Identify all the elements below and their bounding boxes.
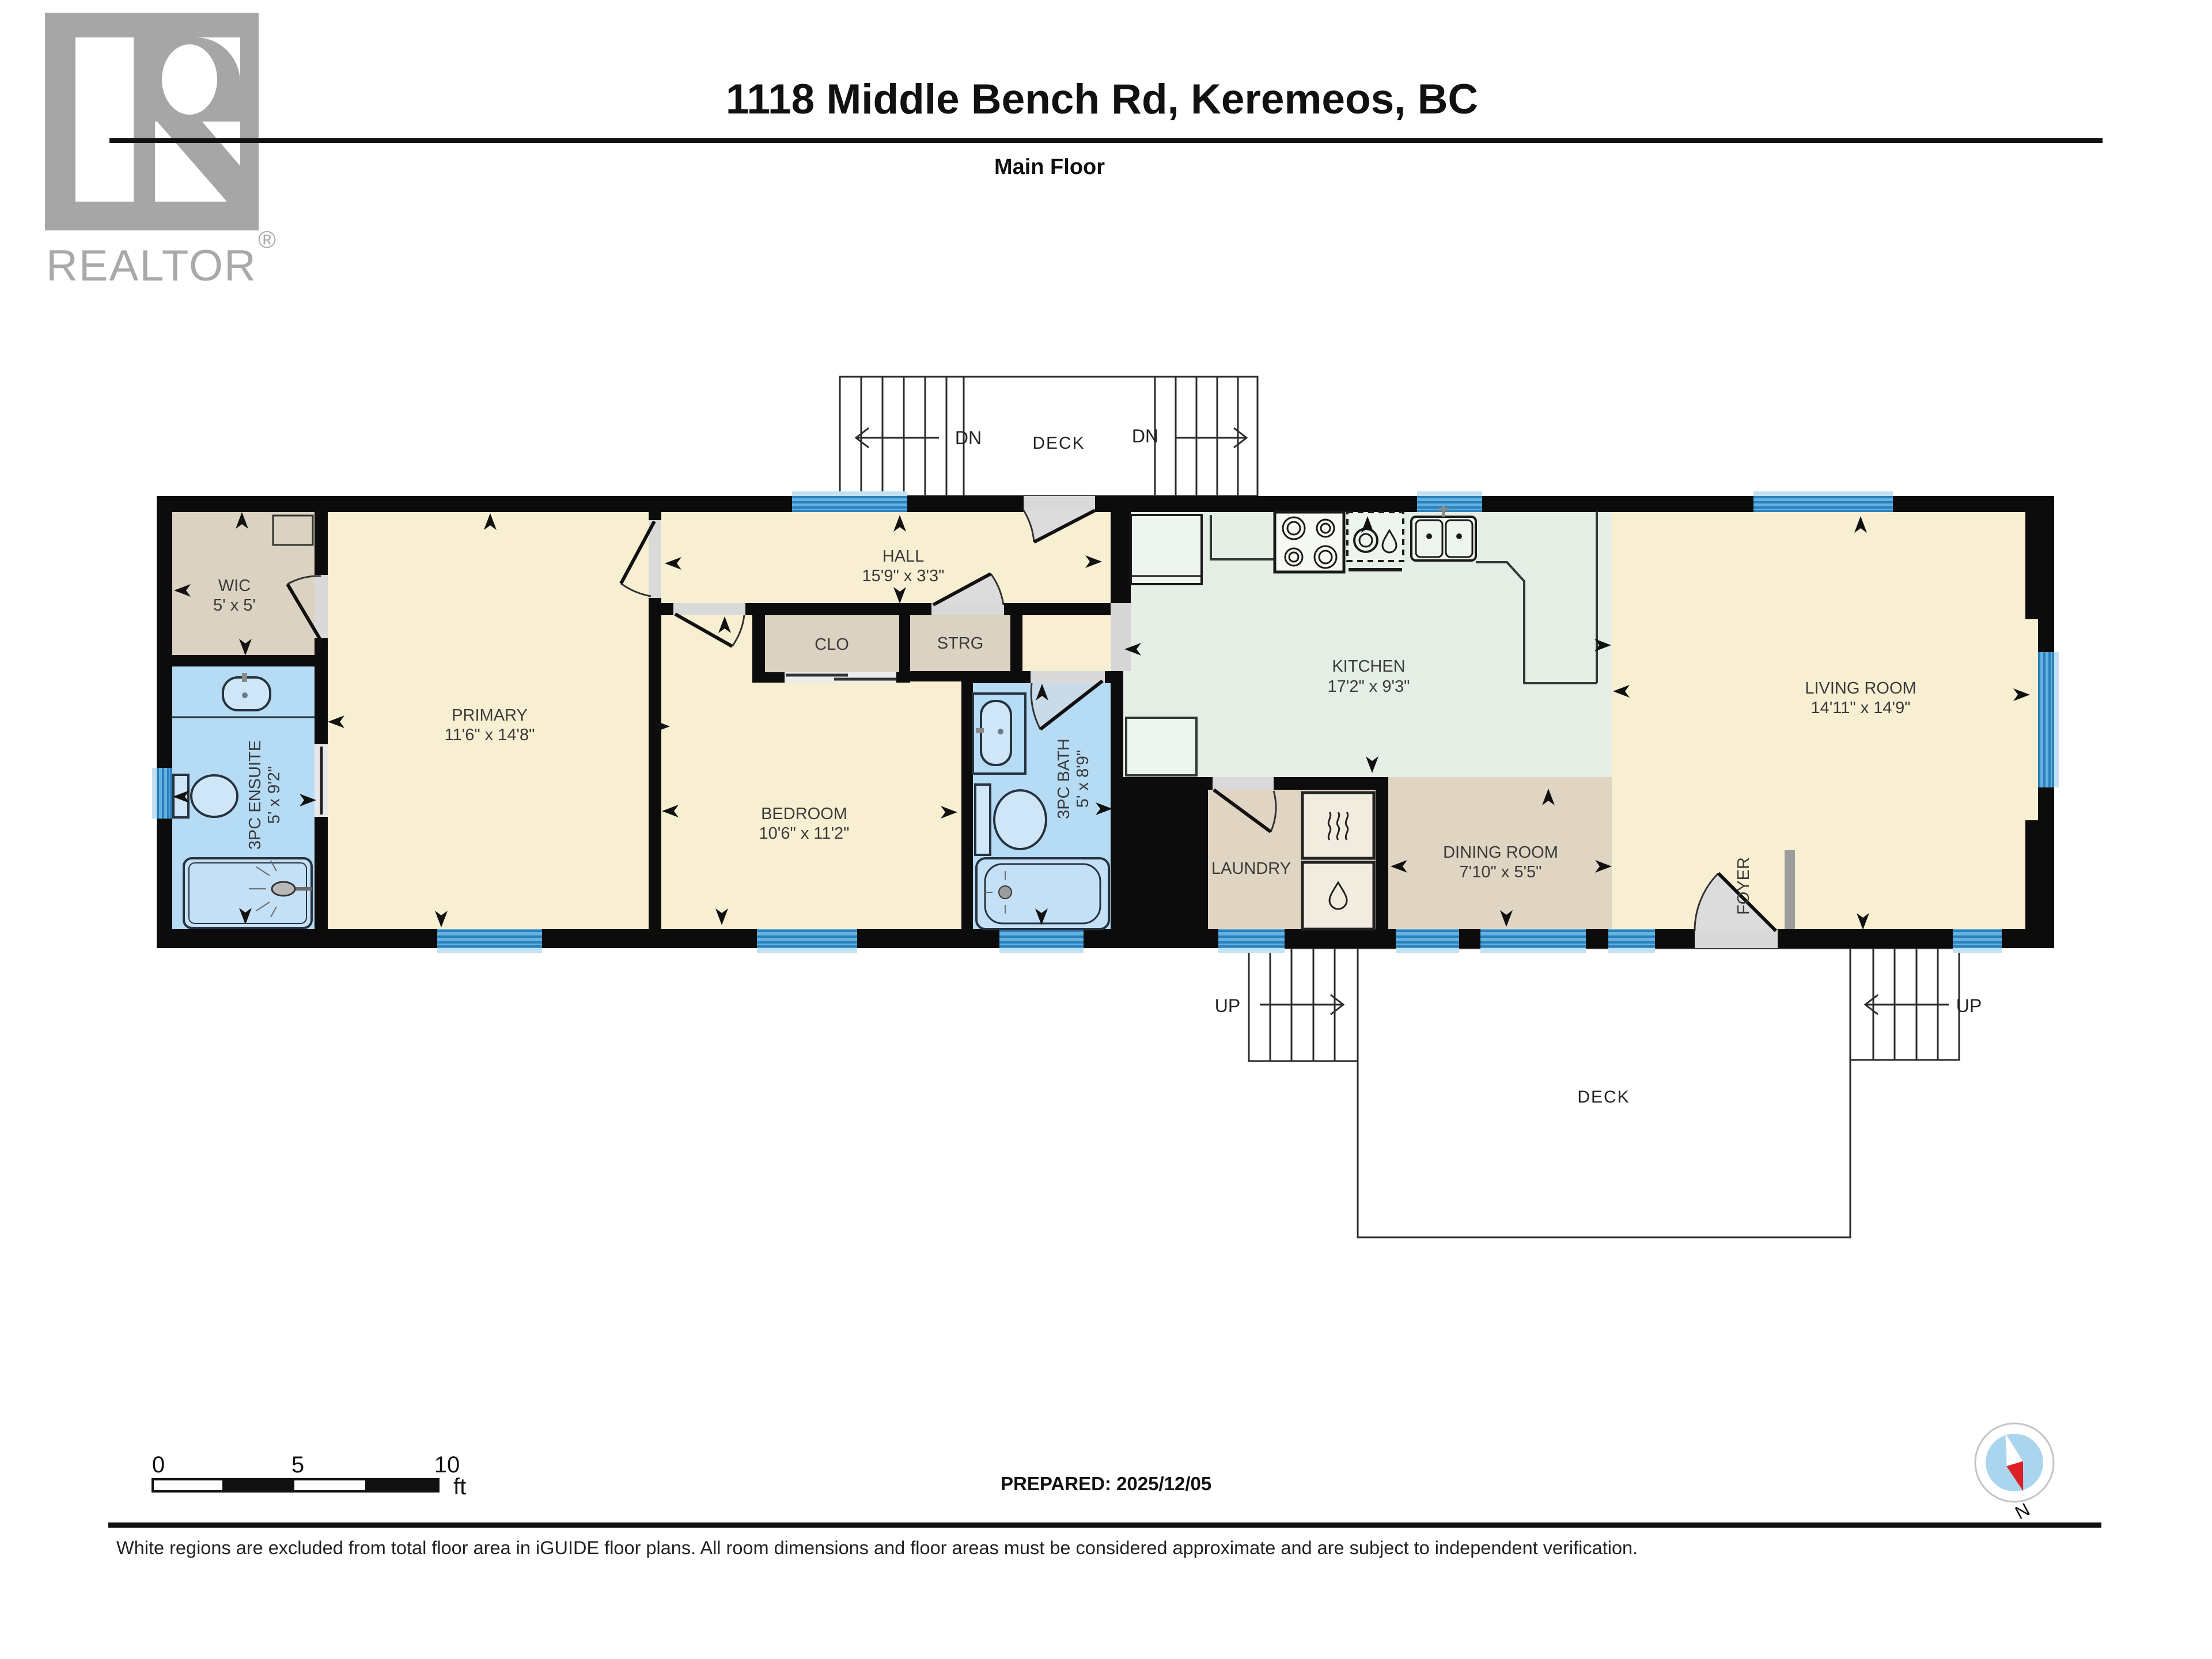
svg-text:DN: DN xyxy=(1132,426,1158,446)
svg-text:17'2" x 9'3": 17'2" x 9'3" xyxy=(1328,677,1410,696)
svg-text:CLO: CLO xyxy=(815,635,849,654)
svg-text:®: ® xyxy=(258,226,276,253)
svg-text:DINING ROOM: DINING ROOM xyxy=(1443,843,1558,862)
svg-text:DN: DN xyxy=(955,427,982,448)
svg-text:BEDROOM: BEDROOM xyxy=(761,805,847,823)
svg-text:DECK: DECK xyxy=(1577,1088,1630,1107)
svg-text:11'6" x 14'8": 11'6" x 14'8" xyxy=(445,726,535,744)
svg-text:LIVING ROOM: LIVING ROOM xyxy=(1805,679,1916,698)
svg-text:7'10" x 5'5": 7'10" x 5'5" xyxy=(1460,863,1542,881)
svg-text:3PC BATH5' x 8'9": 3PC BATH5' x 8'9" xyxy=(1055,738,1092,819)
svg-text:FOYER: FOYER xyxy=(1734,857,1753,915)
svg-text:5: 5 xyxy=(291,1452,304,1478)
svg-text:PREPARED: 2025/12/05: PREPARED: 2025/12/05 xyxy=(1001,1473,1211,1494)
svg-text:LAUNDRY: LAUNDRY xyxy=(1211,859,1291,878)
svg-text:DECK: DECK xyxy=(1032,434,1085,453)
svg-text:14'11" x 14'9": 14'11" x 14'9" xyxy=(1810,699,1910,717)
svg-text:15'9" x 3'3": 15'9" x 3'3" xyxy=(862,567,945,585)
svg-text:UP: UP xyxy=(1956,995,1982,1016)
svg-text:White regions are excluded fro: White regions are excluded from total fl… xyxy=(116,1537,1638,1558)
svg-text:WIC: WIC xyxy=(218,577,251,595)
svg-text:REALTOR: REALTOR xyxy=(46,241,257,290)
svg-text:0: 0 xyxy=(152,1452,165,1478)
svg-text:1118 Middle Bench Rd, Keremeos: 1118 Middle Bench Rd, Keremeos, BC xyxy=(726,76,1478,123)
svg-text:HALL: HALL xyxy=(882,547,925,566)
svg-text:KITCHEN: KITCHEN xyxy=(1332,657,1405,676)
svg-text:PRIMARY: PRIMARY xyxy=(452,706,528,725)
svg-text:10'6" x 11'2": 10'6" x 11'2" xyxy=(759,824,850,843)
svg-text:Main Floor: Main Floor xyxy=(994,155,1105,179)
svg-text:UP: UP xyxy=(1215,995,1240,1016)
svg-text:ft: ft xyxy=(453,1474,466,1499)
svg-text:5' x 5': 5' x 5' xyxy=(213,596,256,615)
svg-text:STRG: STRG xyxy=(937,634,984,653)
